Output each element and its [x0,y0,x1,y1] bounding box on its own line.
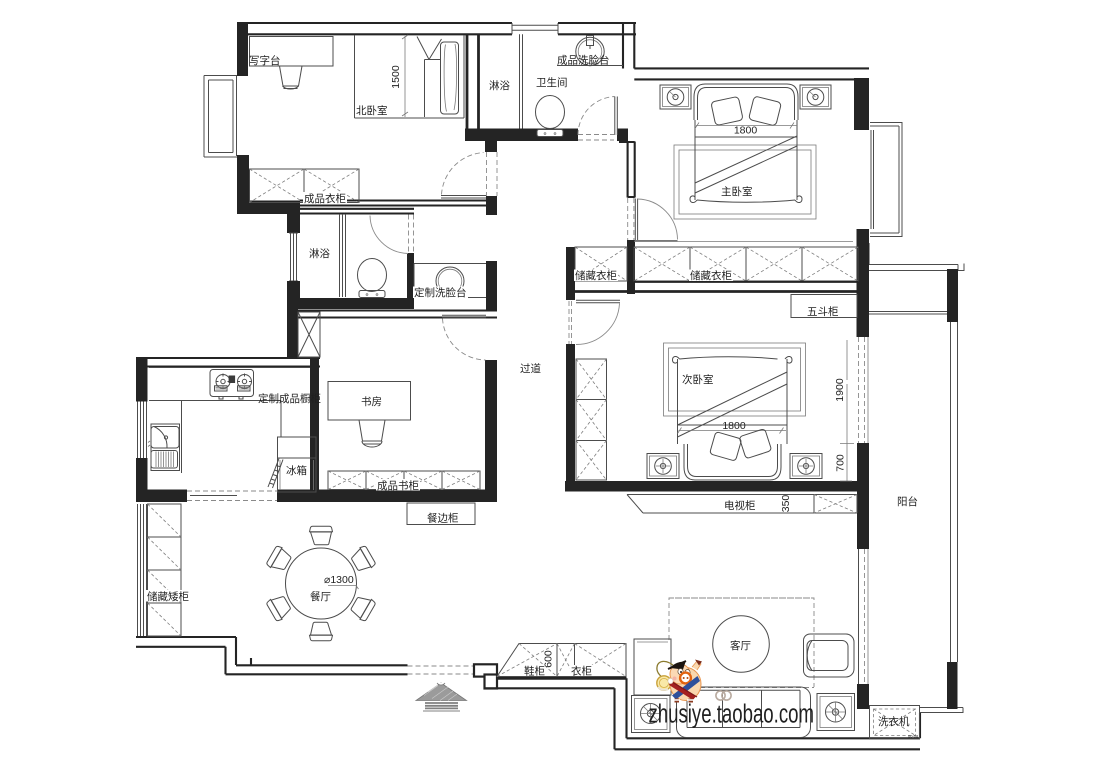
svg-text:定制成品橱柜: 定制成品橱柜 [258,392,321,405]
svg-text:350: 350 [780,495,792,513]
svg-text:储藏衣柜: 储藏衣柜 [575,269,617,282]
svg-text:1800: 1800 [734,125,758,137]
svg-text:1800: 1800 [722,420,746,432]
svg-text:00-08: 00-08 [908,734,919,739]
svg-text:淋浴: 淋浴 [489,79,510,92]
svg-text:电视柜: 电视柜 [724,499,756,512]
svg-text:洗衣机: 洗衣机 [878,715,910,728]
svg-text:写字台: 写字台 [249,54,281,67]
svg-text:700: 700 [835,454,847,472]
svg-text:成品衣柜: 成品衣柜 [304,192,346,205]
svg-text:⌀1300: ⌀1300 [324,574,354,586]
svg-text:书房: 书房 [361,395,382,408]
svg-text:卫生间: 卫生间 [536,76,568,89]
svg-text:冰箱: 冰箱 [286,464,307,477]
svg-text:储藏矮柜: 储藏矮柜 [147,590,189,603]
svg-text:成品洗脸台: 成品洗脸台 [557,54,610,67]
svg-text:五斗柜: 五斗柜 [807,305,839,318]
svg-text:储藏衣柜: 储藏衣柜 [690,269,732,282]
svg-text:阳台: 阳台 [897,495,918,508]
svg-text:过道: 过道 [520,362,541,375]
svg-text:1500: 1500 [390,65,402,89]
svg-text:衣柜: 衣柜 [571,665,592,678]
svg-text:餐厅: 餐厅 [310,590,331,603]
svg-text:客厅: 客厅 [730,639,751,652]
svg-text:次卧室: 次卧室 [682,373,714,386]
svg-text:北卧室: 北卧室 [356,104,388,117]
svg-text:成品书柜: 成品书柜 [377,479,419,492]
svg-text:600: 600 [543,650,555,668]
svg-text:主卧室: 主卧室 [721,185,753,198]
svg-text:zhusiye.taobao.com: zhusiye.taobao.com [649,700,814,729]
svg-text:淋浴: 淋浴 [309,247,330,260]
svg-text:餐边柜: 餐边柜 [427,512,459,525]
svg-text:定制洗脸台: 定制洗脸台 [414,286,467,299]
svg-text:1900: 1900 [834,378,846,402]
